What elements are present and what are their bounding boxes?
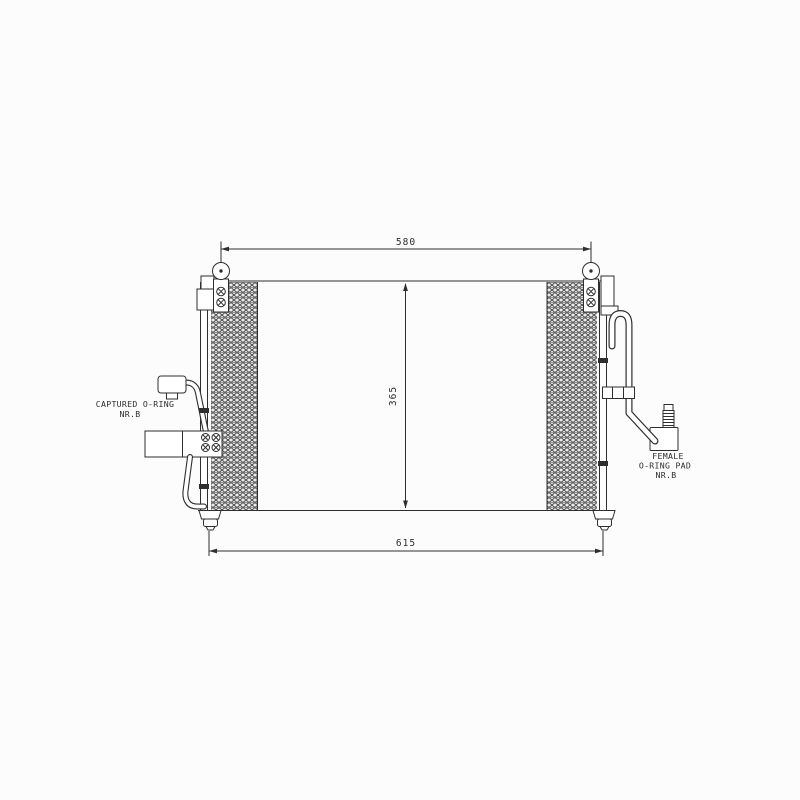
right-pipe-assembly (603, 314, 679, 451)
right-fin-band (547, 282, 597, 510)
dimension-365: 365 (388, 283, 408, 509)
dim-365-arrow-bottom (403, 501, 408, 509)
right-mounting-hole-center (589, 269, 592, 272)
captured-oring-label-line2: NR.B (120, 409, 141, 419)
left-mount-bracket-upper (201, 276, 214, 290)
left-header (197, 263, 230, 313)
female-oring-label-line1: FEMALE (652, 451, 683, 461)
left-fitting-assembly (145, 376, 222, 507)
technical-drawing: 580 365 615 CAPTURED O-RING NR.B FEMALE … (0, 0, 800, 800)
dim-615-value: 615 (396, 538, 416, 549)
dim-615-arrow-right (595, 549, 603, 554)
receiver-block (145, 431, 222, 457)
right-bottom-cap (593, 511, 615, 531)
dim-580-value: 580 (396, 237, 416, 248)
left-outlet-pipe (185, 457, 204, 507)
captured-oring-fitting (158, 376, 186, 393)
dim-580-arrow-right (583, 247, 591, 252)
service-stud-cap (664, 405, 673, 411)
captured-oring-label-line1: CAPTURED O-RING (96, 399, 174, 409)
female-oring-pad-label: FEMALE O-RING PAD NR.B (639, 451, 691, 480)
captured-oring-label: CAPTURED O-RING NR.B (96, 399, 174, 419)
female-oring-label-line2: O-RING PAD (639, 461, 691, 471)
condenser-core (198, 281, 615, 511)
left-inlet-pipe (186, 383, 206, 433)
dimension-615: 615 (209, 531, 603, 556)
female-oring-label-line3: NR.B (656, 470, 677, 480)
right-hairpin-pipe (612, 314, 655, 442)
left-bottom-cap (199, 511, 221, 531)
dim-615-arrow-left (209, 549, 217, 554)
dimension-580: 580 (221, 237, 591, 263)
dim-365-value: 365 (388, 386, 399, 406)
dim-580-arrow-left (221, 247, 229, 252)
pipe-clamp (603, 387, 635, 399)
left-mounting-hole-center (219, 269, 222, 272)
left-fin-band (211, 282, 257, 510)
left-mount-bracket-lower (197, 289, 214, 310)
dim-365-arrow-top (403, 283, 408, 291)
right-header (583, 263, 619, 316)
fin-band-inner-edges (258, 282, 548, 510)
right-mount-bracket (601, 276, 614, 308)
